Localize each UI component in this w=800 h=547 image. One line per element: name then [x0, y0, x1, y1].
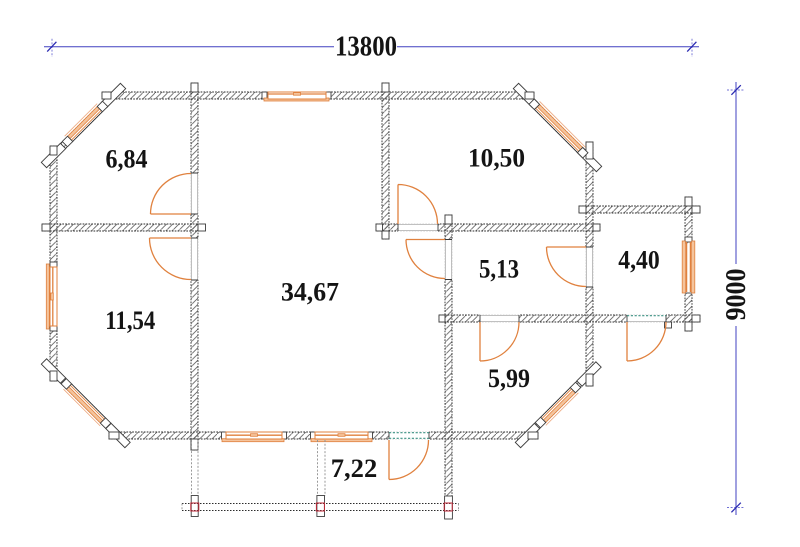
svg-text:5,13: 5,13 [479, 255, 519, 284]
svg-text:11,54: 11,54 [105, 306, 155, 335]
svg-text:34,67: 34,67 [281, 278, 339, 307]
svg-text:13800: 13800 [335, 31, 397, 63]
svg-text:4,40: 4,40 [618, 246, 660, 275]
svg-text:9000: 9000 [721, 269, 752, 321]
svg-text:6,84: 6,84 [106, 145, 148, 174]
svg-text:5,99: 5,99 [488, 364, 530, 393]
svg-text:10,50: 10,50 [468, 144, 525, 173]
svg-text:7,22: 7,22 [331, 454, 378, 483]
